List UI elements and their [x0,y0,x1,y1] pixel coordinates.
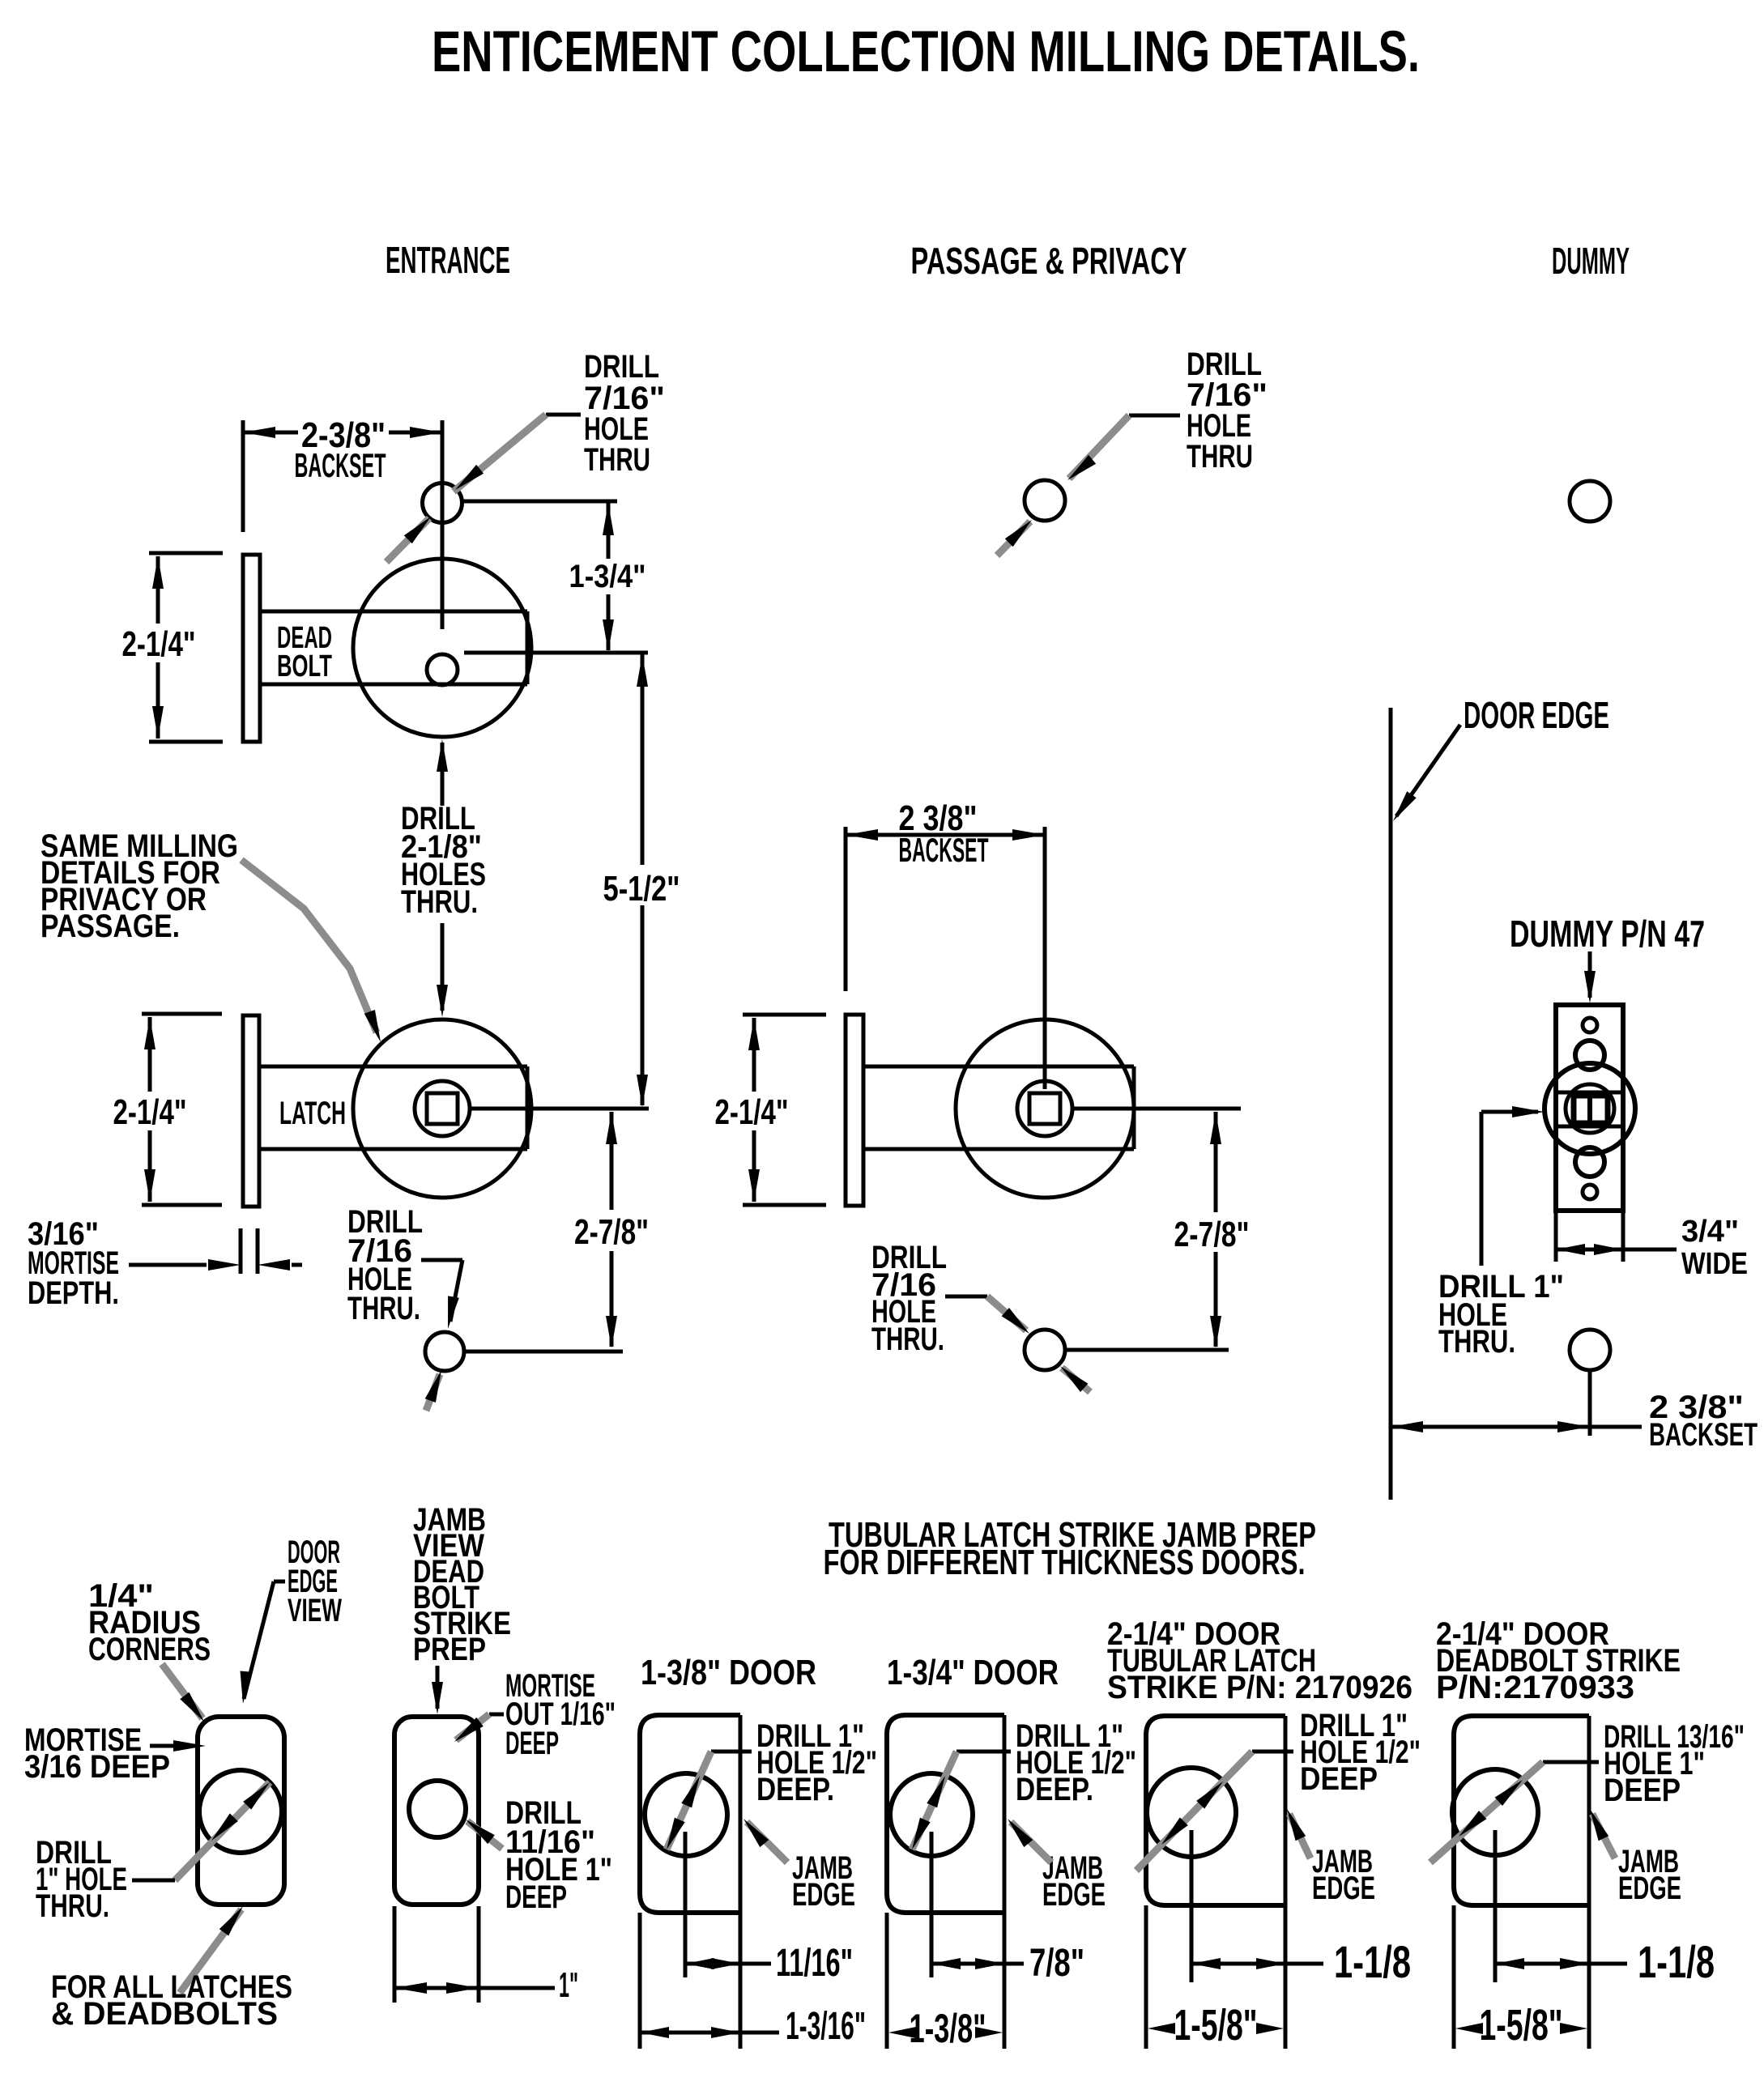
svg-text:5-1/2": 5-1/2" [603,869,680,909]
svg-text:1-1/8: 1-1/8 [1638,1936,1715,1987]
svg-text:CORNERS: CORNERS [88,1632,211,1667]
svg-text:THRU.: THRU. [871,1322,944,1357]
svg-text:DEEP: DEEP [1604,1773,1681,1808]
svg-text:2-1/4": 2-1/4" [715,1092,789,1132]
svg-text:THRU: THRU [584,442,650,478]
svg-text:2-7/8": 2-7/8" [574,1212,649,1252]
svg-text:2-1/4": 2-1/4" [122,624,196,664]
svg-text:1-5/8": 1-5/8" [1480,2001,1563,2050]
svg-text:1-1/8: 1-1/8 [1334,1936,1411,1987]
svg-text:LATCH: LATCH [279,1096,346,1131]
svg-text:DEEP: DEEP [1300,1761,1378,1797]
svg-text:3/16 DEEP: 3/16 DEEP [24,1749,170,1785]
svg-text:1-3/8": 1-3/8" [910,2006,986,2051]
svg-text:DEPTH.: DEPTH. [28,1275,119,1311]
svg-text:BACKSET: BACKSET [295,446,386,484]
svg-text:1": 1" [559,1965,578,2005]
svg-text:DUMMY P/N 47: DUMMY P/N 47 [1510,913,1705,955]
svg-text:P/N:2170933: P/N:2170933 [1436,1670,1634,1705]
svg-text:EDGE: EDGE [1042,1877,1106,1913]
svg-text:3/4": 3/4" [1681,1215,1739,1249]
svg-text:DEEP.: DEEP. [1016,1772,1093,1807]
svg-text:WIDE: WIDE [1681,1247,1748,1281]
svg-text:THRU: THRU [1187,439,1253,475]
svg-text:1-3/16": 1-3/16" [786,2005,866,2048]
svg-text:PASSAGE & PRIVACY: PASSAGE & PRIVACY [911,240,1187,282]
svg-text:THRU.: THRU. [1438,1324,1515,1360]
svg-text:7/8": 7/8" [1029,1942,1084,1985]
svg-text:DUMMY: DUMMY [1552,240,1630,282]
svg-text:EDGE: EDGE [1618,1871,1681,1906]
svg-text:DOOR EDGE: DOOR EDGE [1464,694,1609,736]
svg-text:THRU.: THRU. [401,884,478,920]
svg-text:STRIKE P/N: 2170926: STRIKE P/N: 2170926 [1107,1670,1412,1705]
svg-text:& DEADBOLTS: & DEADBOLTS [51,1996,278,2032]
svg-text:DEEP: DEEP [505,1879,567,1915]
svg-text:11/16": 11/16" [776,1942,853,1985]
svg-text:BOLT: BOLT [277,649,332,683]
svg-text:EDGE: EDGE [1312,1871,1375,1906]
svg-text:FOR DIFFERENT THICKNESS DOORS.: FOR DIFFERENT THICKNESS DOORS. [824,1543,1306,1582]
svg-text:PASSAGE.: PASSAGE. [40,909,180,944]
svg-text:ENTICEMENT COLLECTION MILLING: ENTICEMENT COLLECTION MILLING DETAILS. [432,20,1420,84]
svg-text:1-3/4" DOOR: 1-3/4" DOOR [887,1653,1059,1692]
svg-text:VIEW: VIEW [288,1593,342,1628]
svg-text:EDGE: EDGE [792,1877,855,1913]
svg-text:1-5/8": 1-5/8" [1174,2001,1258,2050]
svg-text:DRILL: DRILL [584,349,659,385]
svg-text:THRU.: THRU. [347,1291,420,1326]
svg-text:PREP: PREP [413,1632,486,1667]
svg-text:DEEP: DEEP [505,1726,559,1761]
svg-text:1-3/8" DOOR: 1-3/8" DOOR [641,1653,816,1692]
svg-text:BACKSET: BACKSET [1649,1417,1758,1453]
svg-text:ENTRANCE: ENTRANCE [386,239,510,281]
svg-text:2-7/8": 2-7/8" [1174,1215,1250,1254]
svg-text:DEEP.: DEEP. [756,1772,834,1807]
svg-text:THRU.: THRU. [36,1888,109,1924]
svg-text:1-3/4": 1-3/4" [569,559,646,594]
svg-text:2-1/4": 2-1/4" [113,1092,187,1132]
